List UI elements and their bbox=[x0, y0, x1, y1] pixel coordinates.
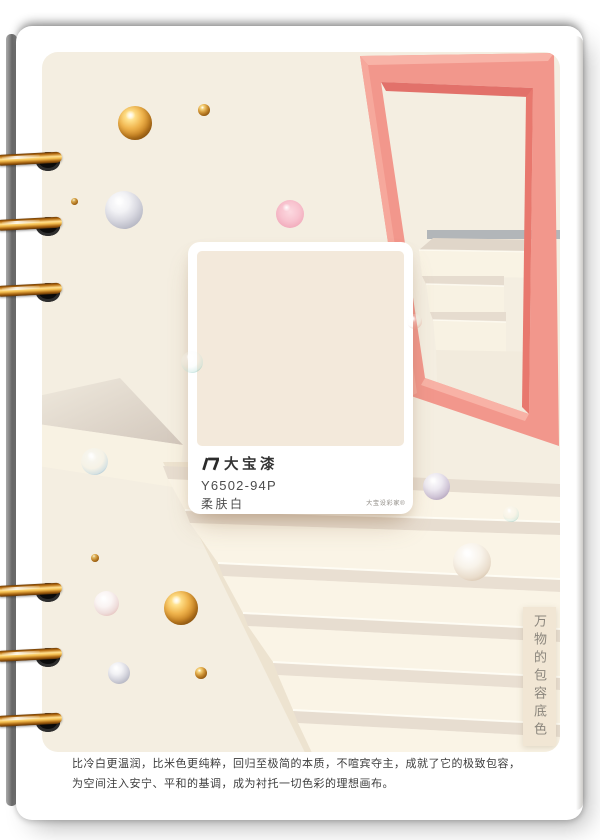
description-line-1: 比冷白更温润，比米色更纯粹，回归至极简的本质，不喧宾夺主，成就了它的极致包容， bbox=[72, 755, 550, 775]
brand-row: 大宝漆 bbox=[199, 453, 278, 474]
bubble-clear-on-card bbox=[407, 314, 422, 329]
pearl-lavender bbox=[423, 473, 450, 500]
notebook-page: 万物的包容底色 大宝漆 Y6502-94P 柔肤白 大宝设彩家® bbox=[16, 26, 583, 820]
dabao-logo-icon bbox=[199, 456, 219, 471]
binder-ring bbox=[0, 282, 70, 302]
sphere-gold-dot-mid bbox=[91, 554, 99, 562]
sphere-gold-small-top bbox=[198, 104, 210, 116]
color-code: Y6502-94P bbox=[201, 478, 277, 493]
notebook-mockup: 万物的包容底色 大宝漆 Y6502-94P 柔肤白 大宝设彩家® bbox=[0, 0, 600, 840]
bubble-teal-on-card bbox=[181, 351, 203, 373]
bubble-teal-small-right bbox=[503, 506, 519, 522]
binder-ring bbox=[0, 712, 70, 732]
sphere-pink bbox=[276, 200, 304, 228]
sphere-gold-large-mid bbox=[164, 591, 198, 625]
trademark-text: 大宝设彩家® bbox=[366, 498, 405, 507]
binder-ring bbox=[0, 151, 70, 171]
bubble-blue-left bbox=[81, 448, 108, 475]
pearl-champagne-large bbox=[453, 543, 491, 581]
color-swatch-card: 大宝漆 Y6502-94P 柔肤白 大宝设彩家® bbox=[188, 242, 413, 514]
pearl-white-small bbox=[108, 662, 130, 684]
vertical-slogan: 万物的包容底色 bbox=[523, 607, 556, 746]
sphere-gold-small-mid bbox=[195, 667, 207, 679]
brand-name: 大宝漆 bbox=[224, 453, 278, 474]
binder-ring bbox=[0, 582, 70, 602]
binder-ring bbox=[0, 647, 70, 667]
paint-poster: 万物的包容底色 大宝漆 Y6502-94P 柔肤白 大宝设彩家® bbox=[42, 52, 560, 752]
paint-color-swatch bbox=[197, 251, 404, 446]
binder-ring bbox=[0, 216, 70, 236]
poster-description: 比冷白更温润，比米色更纯粹，回归至极简的本质，不喧宾夺主，成就了它的极致包容， … bbox=[72, 755, 550, 794]
sphere-gold-dot-left bbox=[71, 198, 78, 205]
color-name: 柔肤白 bbox=[201, 495, 245, 512]
pearl-pink-rim bbox=[94, 591, 119, 616]
description-line-2: 为空间注入安宁、平和的基调，成为衬托一切色彩的理想画布。 bbox=[72, 775, 550, 795]
pearl-silver-left bbox=[105, 191, 143, 229]
sphere-gold-large-top bbox=[118, 106, 152, 140]
